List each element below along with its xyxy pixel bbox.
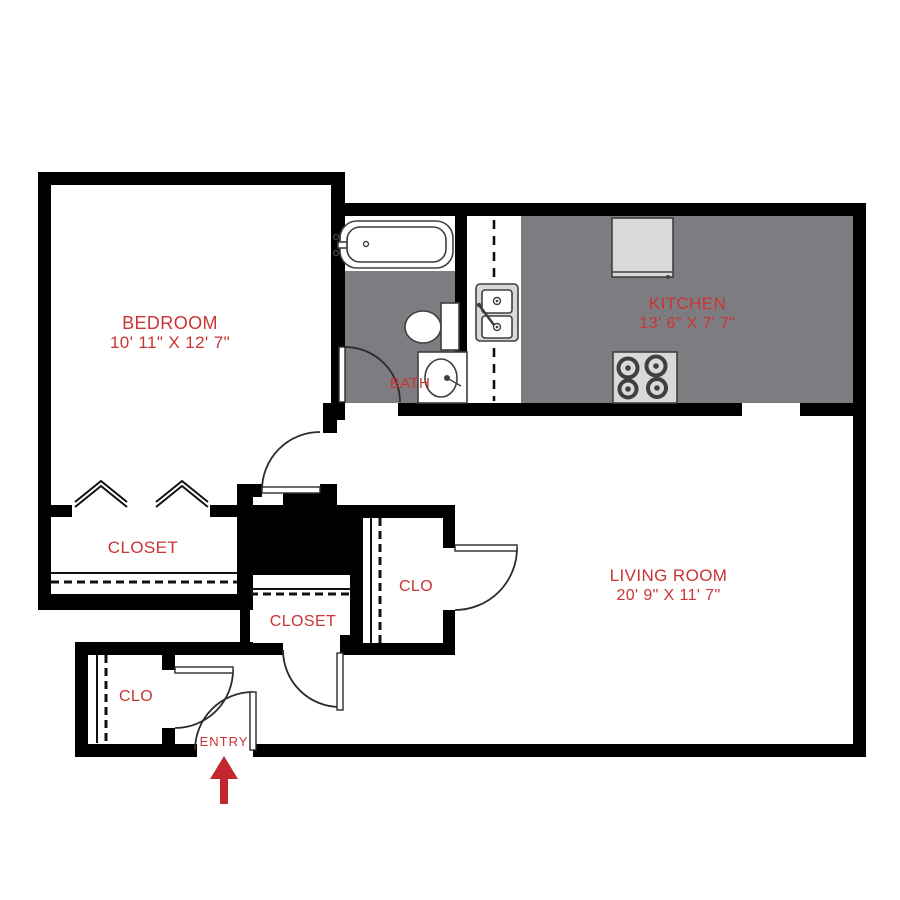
toilet-tank xyxy=(441,303,459,350)
wall xyxy=(340,635,363,655)
toilet-bowl xyxy=(405,311,441,343)
hall-closet-label: CLOSET xyxy=(253,612,353,632)
floor-plan: BEDROOM 10' 11" X 12' 7" KITCHEN 13' 6" … xyxy=(0,0,900,900)
stove-burner-dot xyxy=(654,385,660,391)
wall xyxy=(38,594,253,610)
bifold-door xyxy=(75,481,127,502)
entry-arrow-stem xyxy=(220,779,228,804)
wall xyxy=(38,172,51,610)
wall xyxy=(75,642,253,655)
wall xyxy=(38,505,72,517)
refrigerator-handle xyxy=(666,275,670,279)
wall xyxy=(443,505,455,548)
bedroom-closet-rod xyxy=(51,573,237,582)
hall-clo-label: CLO xyxy=(381,577,451,597)
door-leaf xyxy=(175,667,233,673)
kitchen-sink-drain-dot xyxy=(496,300,499,303)
door-leaf xyxy=(337,653,343,710)
bathtub-faucet xyxy=(338,242,347,248)
entry-clo-label: CLO xyxy=(101,687,171,707)
wall xyxy=(162,728,175,744)
wall xyxy=(320,484,337,505)
door-leaf xyxy=(262,487,320,493)
wall xyxy=(240,575,250,655)
wall xyxy=(363,505,455,518)
door-leaf xyxy=(455,545,517,551)
bath-label: BATH xyxy=(370,374,450,394)
door-leaf xyxy=(339,347,345,402)
bedroom-dimensions: 10' 11" X 12' 7" xyxy=(50,333,290,353)
wall xyxy=(162,655,175,670)
refrigerator-body xyxy=(612,218,673,277)
bathtub xyxy=(334,221,454,268)
hall-clo-rod xyxy=(371,518,380,643)
stove-burner-dot xyxy=(625,365,631,371)
wall xyxy=(363,643,443,655)
bifold-door xyxy=(156,481,208,502)
bedroom-door xyxy=(262,432,320,493)
stove-burner-dot xyxy=(653,363,659,369)
wall xyxy=(443,610,455,655)
entry-label: ENTRY xyxy=(189,732,259,752)
floor-plan-drawing xyxy=(0,0,900,900)
kitchen-name: KITCHEN xyxy=(570,294,805,314)
wall xyxy=(210,505,240,517)
door-arc xyxy=(455,548,517,610)
hall-closet-door xyxy=(283,650,343,710)
stove xyxy=(613,352,677,403)
kitchen-sink xyxy=(476,284,518,341)
bedroom-closet-bifold-doors xyxy=(75,481,208,507)
wall xyxy=(38,172,345,185)
hall-clo-door xyxy=(455,545,517,610)
hall-closet-rod xyxy=(250,589,350,594)
wall xyxy=(323,403,337,433)
wall xyxy=(75,642,88,757)
kitchen-dimensions: 13' 6" X 7' 7" xyxy=(570,314,805,334)
entry-arrow-head xyxy=(210,756,238,779)
bathtub-inner xyxy=(347,227,446,262)
wall xyxy=(398,403,742,416)
wall xyxy=(853,203,866,757)
door-arc xyxy=(262,432,320,490)
entry-arrow xyxy=(210,756,238,804)
wall xyxy=(75,744,197,757)
wall xyxy=(283,493,320,505)
stove-burner-dot xyxy=(625,386,631,392)
wall xyxy=(240,505,363,575)
kitchen-sink-faucet-base xyxy=(477,303,481,307)
door-arc xyxy=(283,650,340,707)
living-room-dimensions: 20' 9" X 11' 7" xyxy=(550,586,787,606)
wall xyxy=(800,403,853,416)
refrigerator xyxy=(612,218,673,279)
bedroom-name: BEDROOM xyxy=(50,313,290,333)
wall xyxy=(237,484,262,497)
wall xyxy=(250,643,283,655)
kitchen-label: KITCHEN 13' 6" X 7' 7" xyxy=(570,294,805,334)
bedroom-closet-label: CLOSET xyxy=(83,538,203,558)
kitchen-sink-drain-dot xyxy=(496,326,499,329)
bedroom-label: BEDROOM 10' 11" X 12' 7" xyxy=(50,313,290,353)
living-room-name: LIVING ROOM xyxy=(550,566,787,586)
wall xyxy=(253,744,866,757)
living-room-label: LIVING ROOM 20' 9" X 11' 7" xyxy=(550,566,787,606)
wall xyxy=(332,203,866,216)
